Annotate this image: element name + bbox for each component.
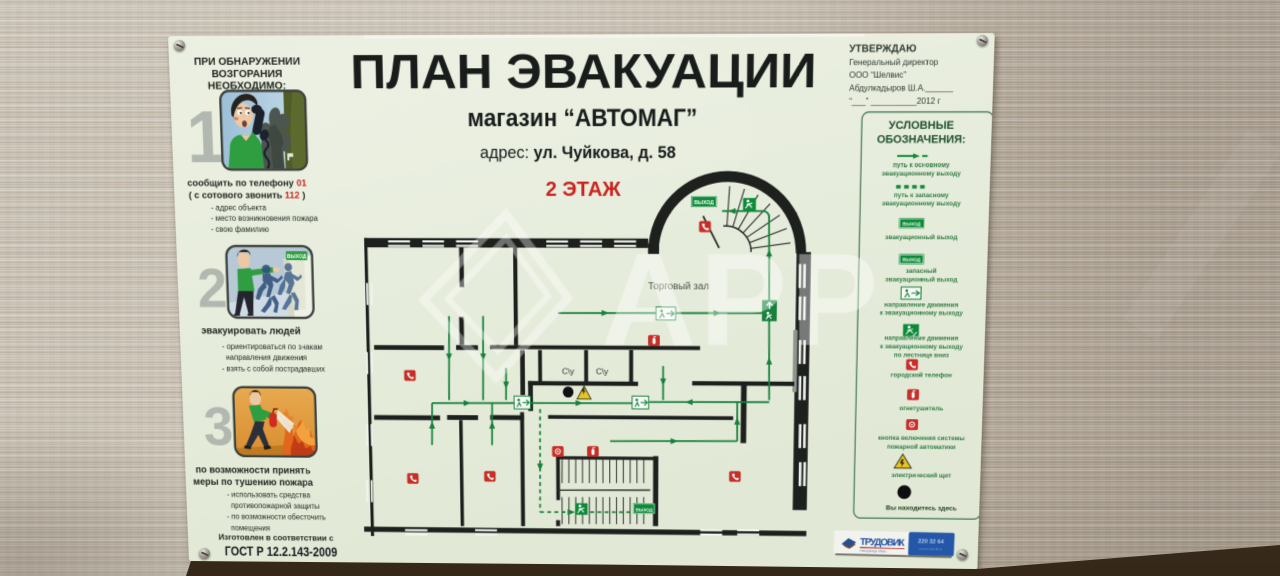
svg-text:220 32 64: 220 32 64: [918, 539, 945, 545]
svg-text:ВЫХОД: ВЫХОД: [902, 257, 921, 263]
svg-text:“___” __________2012 г: “___” __________2012 г: [849, 97, 941, 107]
svg-text:спецодежда обувь: спецодежда обувь: [860, 549, 887, 553]
svg-text:противопожарной защиты: противопожарной защиты: [231, 501, 320, 510]
svg-text:- место возникновения пожара: - место возникновения пожара: [211, 214, 319, 223]
svg-text:по лестнице вниз: по лестнице вниз: [894, 352, 949, 359]
svg-text:2: 2: [196, 257, 228, 319]
svg-text:ООО “Шелвис”: ООО “Шелвис”: [849, 71, 907, 81]
svg-text:УСЛОВНЫЕ: УСЛОВНЫЕ: [889, 120, 955, 132]
svg-text:www.trudovik.ru: www.trudovik.ru: [919, 547, 942, 551]
svg-text:2 ЭТАЖ: 2 ЭТАЖ: [545, 178, 620, 201]
svg-text:Вы находитесь здесь: Вы находитесь здесь: [886, 505, 957, 512]
svg-text:эвакуировать людей: эвакуировать людей: [201, 326, 301, 337]
svg-text:магазин “АВТОМАГ”: магазин “АВТОМАГ”: [467, 104, 697, 132]
svg-text:- ориентироваться по знакам: - ориентироваться по знакам: [222, 342, 323, 351]
svg-text:сообщить по телефону 01: сообщить по телефону 01: [187, 178, 307, 189]
svg-text:ВОЗГОРАНИЯ: ВОЗГОРАНИЯ: [211, 68, 282, 80]
svg-text:ОБОЗНАЧЕНИЯ:: ОБОЗНАЧЕНИЯ:: [877, 134, 966, 146]
svg-text:С\у: С\у: [562, 366, 575, 376]
svg-text:ВЫХОД: ВЫХОД: [636, 507, 654, 512]
svg-text:Генеральный директор: Генеральный директор: [849, 57, 939, 67]
svg-text:эвакуационный выход: эвакуационный выход: [885, 275, 957, 283]
svg-text:УТВЕРЖДАЮ: УТВЕРЖДАЮ: [849, 43, 917, 55]
svg-text:огнетушитель: огнетушитель: [899, 405, 943, 412]
svg-text:помещения: помещения: [231, 524, 270, 533]
svg-text:эвакуационному выходу: эвакуационному выходу: [882, 200, 961, 207]
svg-text:путь к основному: путь к основному: [893, 162, 950, 169]
svg-text:направления движения: направления движения: [226, 353, 307, 362]
svg-text:запасный: запасный: [906, 267, 937, 275]
svg-text:эвакуационный выход: эвакуационный выход: [885, 233, 958, 241]
svg-text:ВЫХОД: ВЫХОД: [287, 254, 307, 260]
svg-text:ВЫХОД: ВЫХОД: [694, 200, 714, 206]
svg-text:Абдулкадыров Ш.А.______: Абдулкадыров Ш.А.______: [849, 83, 954, 93]
svg-text:к эвакуационному выходу: к эвакуационному выходу: [880, 310, 964, 317]
svg-text:кнопка включения системы: кнопка включения системы: [878, 435, 965, 442]
svg-text:С\у: С\у: [596, 366, 609, 376]
svg-text:городской телефон: городской телефон: [891, 371, 952, 379]
svg-text:- взять с собой пострадавших: - взять с собой пострадавших: [222, 364, 325, 373]
svg-text:ПРИ ОБНАРУЖЕНИИ: ПРИ ОБНАРУЖЕНИИ: [194, 56, 300, 69]
svg-text:Изготовлен в соответствии с: Изготовлен в соответствии с: [218, 532, 333, 543]
svg-text:путь к запасному: путь к запасному: [894, 192, 950, 199]
svg-text:к эвакуационному выходу: к эвакуационному выходу: [880, 343, 963, 350]
svg-text:по возможности принять: по возможности принять: [195, 465, 310, 476]
svg-text:меры по тушению пожара: меры по тушению пожара: [193, 477, 314, 489]
svg-text:электрический щит: электрический щит: [891, 471, 951, 479]
svg-text:- адрес объекта: - адрес объекта: [211, 203, 267, 212]
svg-text:направление движения: направление движения: [884, 335, 958, 342]
svg-text:( с сотового звонить 112 ): ( с сотового звонить 112 ): [188, 190, 305, 201]
svg-text:ВЫХОД: ВЫХОД: [902, 221, 921, 227]
svg-text:пожарной автоматики: пожарной автоматики: [887, 443, 956, 451]
svg-text:Торговый зал: Торговый зал: [648, 281, 709, 292]
svg-text:направление движения: направление движения: [884, 301, 959, 308]
svg-text:эвакуационному выходу: эвакуационному выходу: [882, 170, 962, 177]
svg-text:адрес: ул. Чуйкова, д. 58: адрес: ул. Чуйкова, д. 58: [480, 143, 676, 162]
svg-text:ПЛАН ЭВАКУАЦИИ: ПЛАН ЭВАКУАЦИИ: [350, 44, 817, 99]
svg-text:- использовать средства: - использовать средства: [227, 490, 311, 499]
svg-text:- свою фамилию: - свою фамилию: [211, 225, 269, 234]
svg-text:3: 3: [202, 396, 234, 457]
svg-text:ГОСТ Р 12.2.143-2009: ГОСТ Р 12.2.143-2009: [224, 544, 337, 559]
svg-text:- по возможности обесточить: - по возможности обесточить: [227, 512, 326, 521]
